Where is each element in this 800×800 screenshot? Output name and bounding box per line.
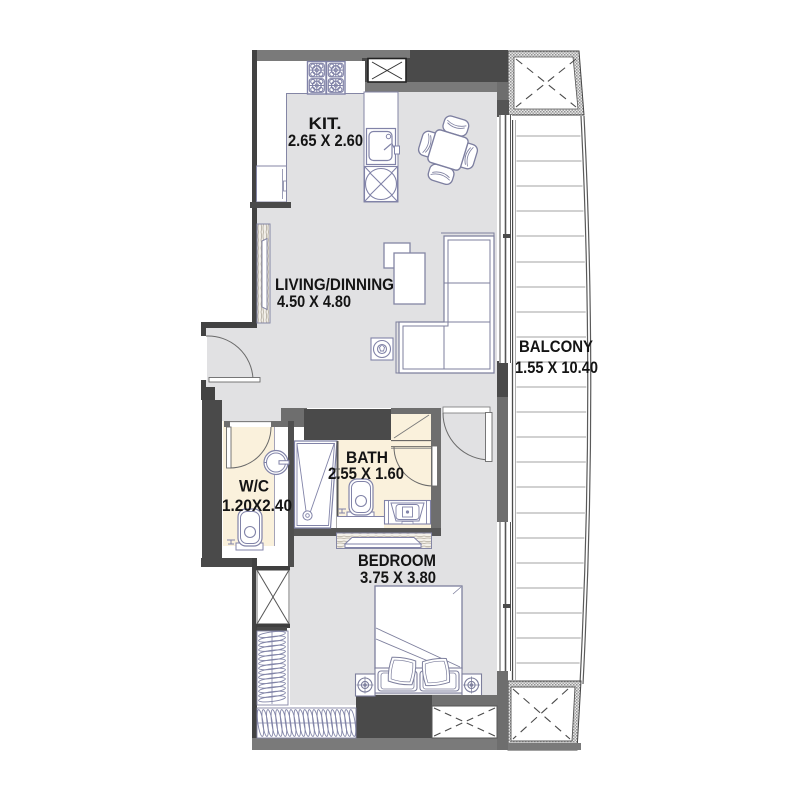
svg-text:4.50 X 4.80: 4.50 X 4.80 xyxy=(277,292,351,311)
svg-text:3.75 X 3.80: 3.75 X 3.80 xyxy=(360,568,436,587)
svg-text:W/C: W/C xyxy=(239,477,269,496)
svg-text:2.55 X 1.60: 2.55 X 1.60 xyxy=(328,464,404,483)
svg-text:1.55 X 10.40: 1.55 X 10.40 xyxy=(515,358,598,377)
svg-text:1.20X2.40: 1.20X2.40 xyxy=(222,496,292,515)
svg-text:BALCONY: BALCONY xyxy=(519,337,594,356)
svg-text:2.65 X 2.60: 2.65 X 2.60 xyxy=(288,131,363,150)
